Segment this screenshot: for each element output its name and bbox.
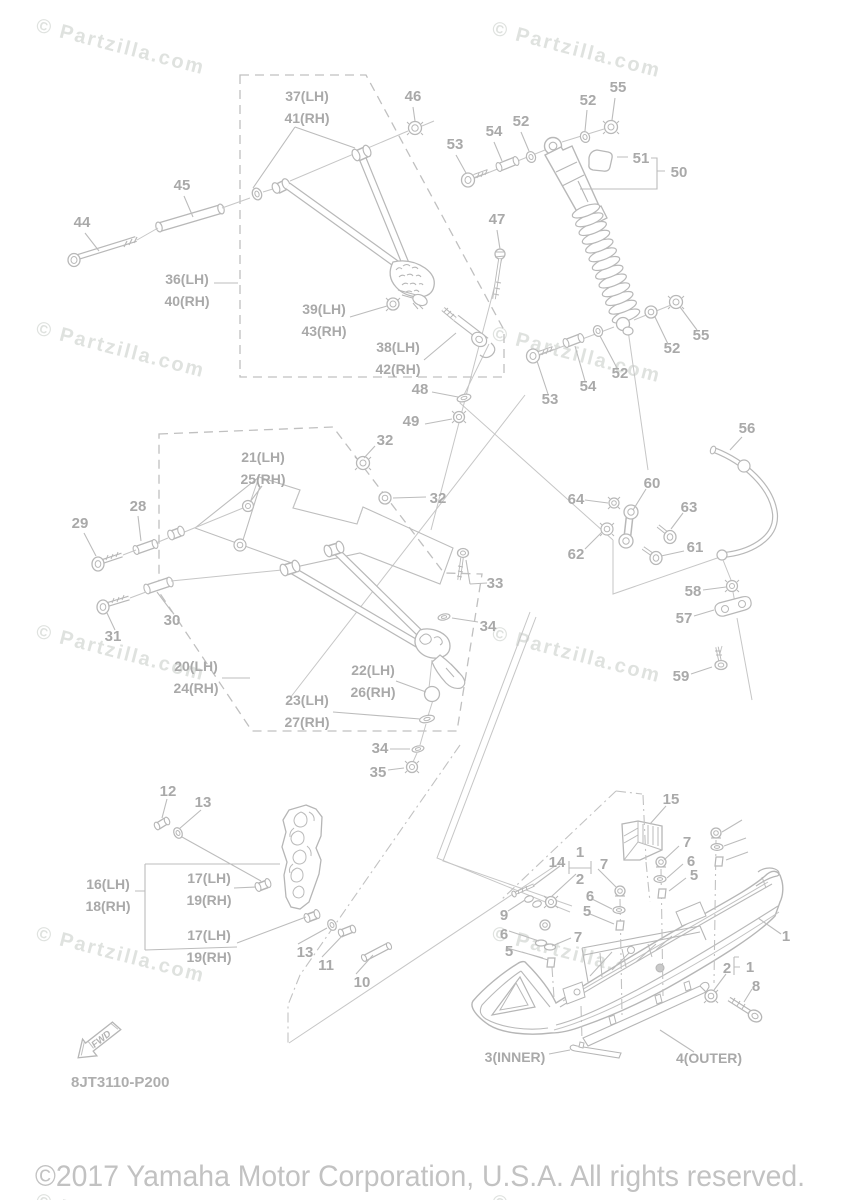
svg-text:26(RH): 26(RH) bbox=[350, 684, 395, 700]
svg-text:34: 34 bbox=[480, 618, 497, 635]
svg-text:8JT3110-P200: 8JT3110-P200 bbox=[71, 1074, 169, 1091]
svg-text:24(RH): 24(RH) bbox=[173, 680, 218, 696]
svg-text:12: 12 bbox=[160, 783, 177, 800]
svg-text:6: 6 bbox=[500, 926, 508, 943]
svg-text:31: 31 bbox=[105, 628, 122, 645]
svg-text:4(OUTER): 4(OUTER) bbox=[676, 1050, 742, 1066]
svg-text:34: 34 bbox=[372, 740, 389, 757]
svg-text:43(RH): 43(RH) bbox=[301, 323, 346, 339]
svg-text:52: 52 bbox=[612, 365, 629, 382]
svg-text:14: 14 bbox=[549, 854, 566, 871]
svg-text:54: 54 bbox=[580, 378, 597, 395]
svg-text:8: 8 bbox=[752, 978, 760, 995]
svg-text:9: 9 bbox=[500, 907, 508, 924]
svg-text:57: 57 bbox=[676, 610, 693, 627]
svg-text:5: 5 bbox=[690, 867, 698, 884]
svg-text:18(RH): 18(RH) bbox=[85, 898, 130, 914]
svg-text:7: 7 bbox=[574, 929, 582, 946]
svg-text:28: 28 bbox=[130, 498, 147, 515]
svg-text:16(LH): 16(LH) bbox=[86, 876, 130, 892]
svg-text:17(LH): 17(LH) bbox=[187, 927, 231, 943]
svg-text:1: 1 bbox=[576, 844, 584, 861]
svg-text:39(LH): 39(LH) bbox=[302, 301, 346, 317]
svg-text:32: 32 bbox=[430, 490, 447, 507]
svg-text:51: 51 bbox=[633, 150, 650, 167]
svg-text:5: 5 bbox=[583, 903, 591, 920]
svg-text:©2017 Yamaha Motor Corporation: ©2017 Yamaha Motor Corporation, U.S.A. A… bbox=[35, 1160, 805, 1193]
svg-text:62: 62 bbox=[568, 546, 585, 563]
svg-text:54: 54 bbox=[486, 123, 503, 140]
svg-text:23(LH): 23(LH) bbox=[285, 692, 329, 708]
svg-text:36(LH): 36(LH) bbox=[165, 271, 209, 287]
svg-text:52: 52 bbox=[580, 92, 597, 109]
svg-text:52: 52 bbox=[513, 113, 530, 130]
svg-text:17(LH): 17(LH) bbox=[187, 870, 231, 886]
svg-text:63: 63 bbox=[681, 499, 698, 516]
svg-text:11: 11 bbox=[318, 957, 334, 974]
svg-text:19(RH): 19(RH) bbox=[186, 892, 231, 908]
svg-text:7: 7 bbox=[683, 834, 691, 851]
svg-text:7: 7 bbox=[600, 856, 608, 873]
svg-text:47: 47 bbox=[489, 211, 506, 228]
svg-text:5: 5 bbox=[505, 943, 513, 960]
svg-text:13: 13 bbox=[195, 794, 212, 811]
svg-text:64: 64 bbox=[568, 491, 585, 508]
svg-text:61: 61 bbox=[687, 539, 704, 556]
svg-text:40(RH): 40(RH) bbox=[164, 293, 209, 309]
svg-text:41(RH): 41(RH) bbox=[284, 110, 329, 126]
svg-text:29: 29 bbox=[72, 515, 89, 532]
svg-text:59: 59 bbox=[673, 668, 690, 685]
svg-text:55: 55 bbox=[693, 327, 710, 344]
svg-text:22(LH): 22(LH) bbox=[351, 662, 395, 678]
svg-text:44: 44 bbox=[74, 214, 91, 231]
svg-text:19(RH): 19(RH) bbox=[186, 949, 231, 965]
svg-text:13: 13 bbox=[297, 944, 314, 961]
svg-text:52: 52 bbox=[664, 340, 681, 357]
svg-text:1: 1 bbox=[746, 959, 754, 976]
svg-text:46: 46 bbox=[405, 88, 422, 105]
svg-text:37(LH): 37(LH) bbox=[285, 88, 329, 104]
svg-text:58: 58 bbox=[685, 583, 702, 600]
svg-text:60: 60 bbox=[644, 475, 661, 492]
svg-text:50: 50 bbox=[671, 164, 688, 181]
svg-text:42(RH): 42(RH) bbox=[375, 361, 420, 377]
svg-text:38(LH): 38(LH) bbox=[376, 339, 420, 355]
svg-text:2: 2 bbox=[723, 960, 731, 977]
svg-text:53: 53 bbox=[542, 391, 559, 408]
svg-text:45: 45 bbox=[174, 177, 191, 194]
svg-text:53: 53 bbox=[447, 136, 464, 153]
svg-text:33: 33 bbox=[487, 575, 504, 592]
svg-text:2: 2 bbox=[576, 871, 584, 888]
svg-text:48: 48 bbox=[412, 381, 429, 398]
svg-text:1: 1 bbox=[782, 928, 790, 945]
svg-text:15: 15 bbox=[663, 791, 680, 808]
svg-text:20(LH): 20(LH) bbox=[174, 658, 218, 674]
svg-text:27(RH): 27(RH) bbox=[284, 714, 329, 730]
svg-text:30: 30 bbox=[164, 612, 181, 629]
svg-text:35: 35 bbox=[370, 764, 387, 781]
svg-text:56: 56 bbox=[739, 420, 756, 437]
svg-text:32: 32 bbox=[377, 432, 394, 449]
svg-text:21(LH): 21(LH) bbox=[241, 449, 285, 465]
svg-text:3(INNER): 3(INNER) bbox=[485, 1049, 546, 1065]
svg-text:55: 55 bbox=[610, 79, 627, 96]
svg-text:25(RH): 25(RH) bbox=[240, 471, 285, 487]
svg-text:49: 49 bbox=[403, 413, 420, 430]
svg-text:10: 10 bbox=[354, 974, 371, 991]
